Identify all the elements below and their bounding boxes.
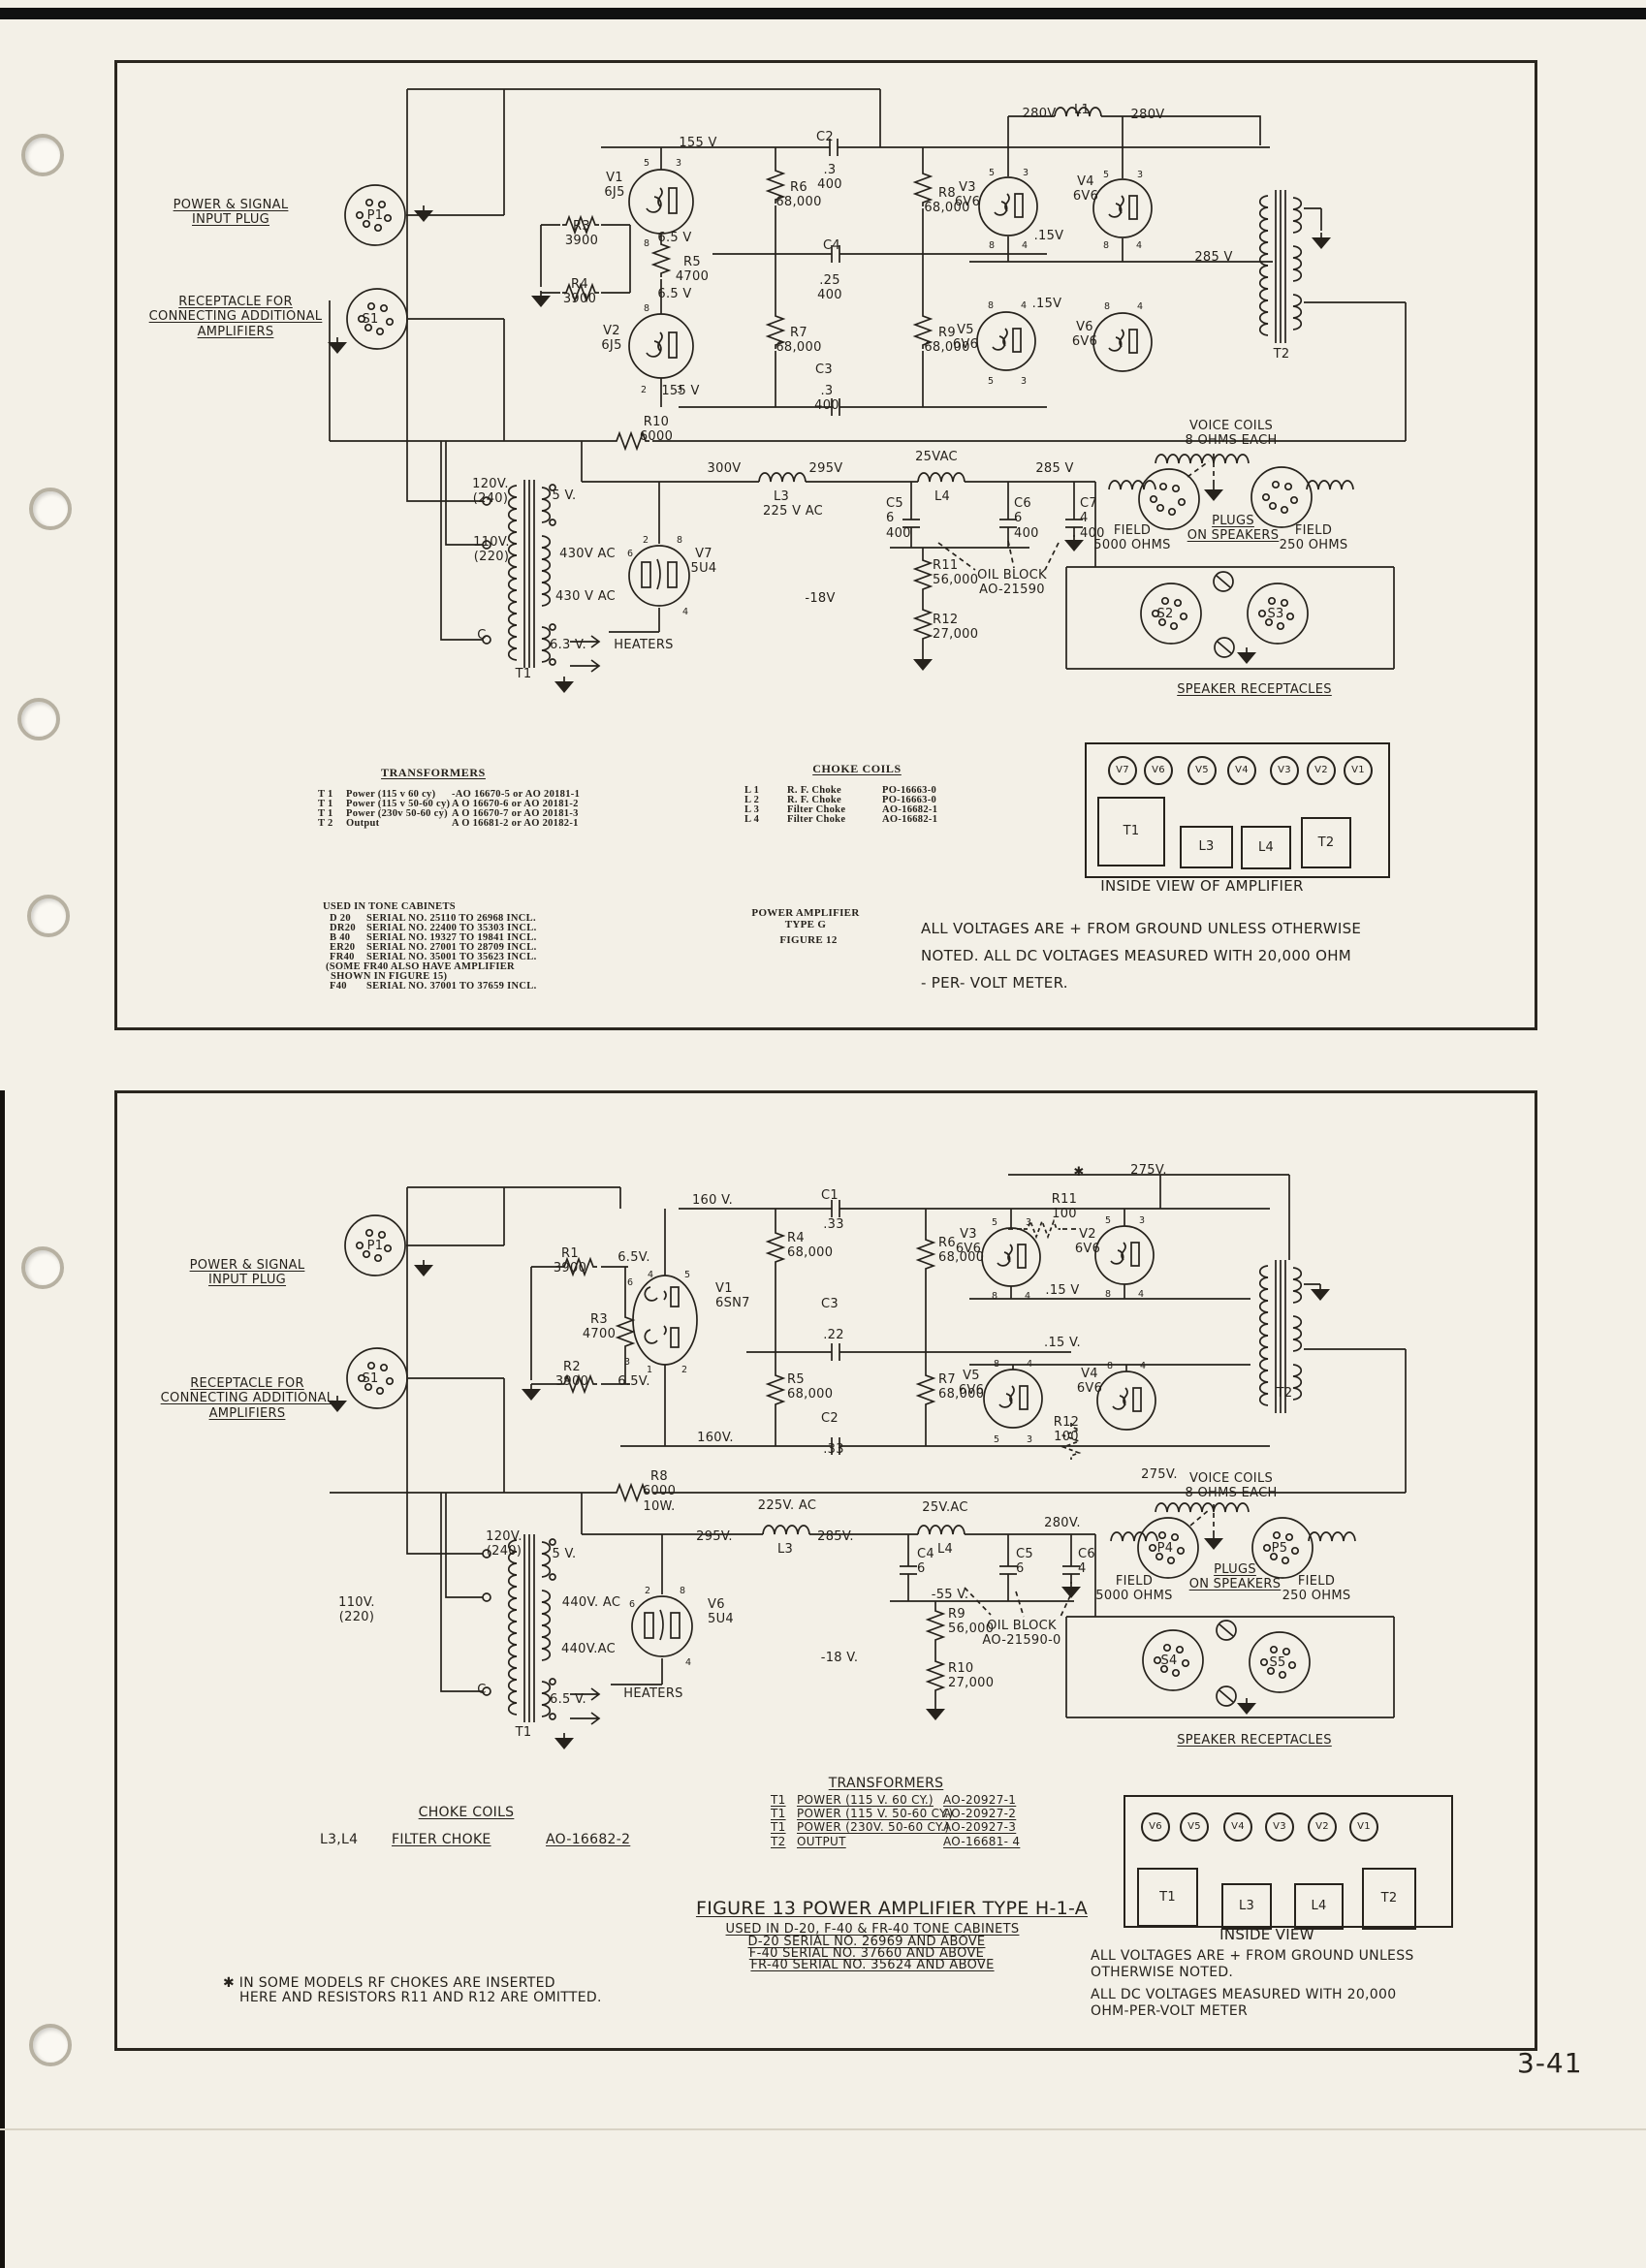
schematic-linework	[0, 0, 1646, 2268]
manual-page: POWER & SIGNAL INPUT PLUGRECEPTACLE FOR …	[0, 0, 1646, 2268]
